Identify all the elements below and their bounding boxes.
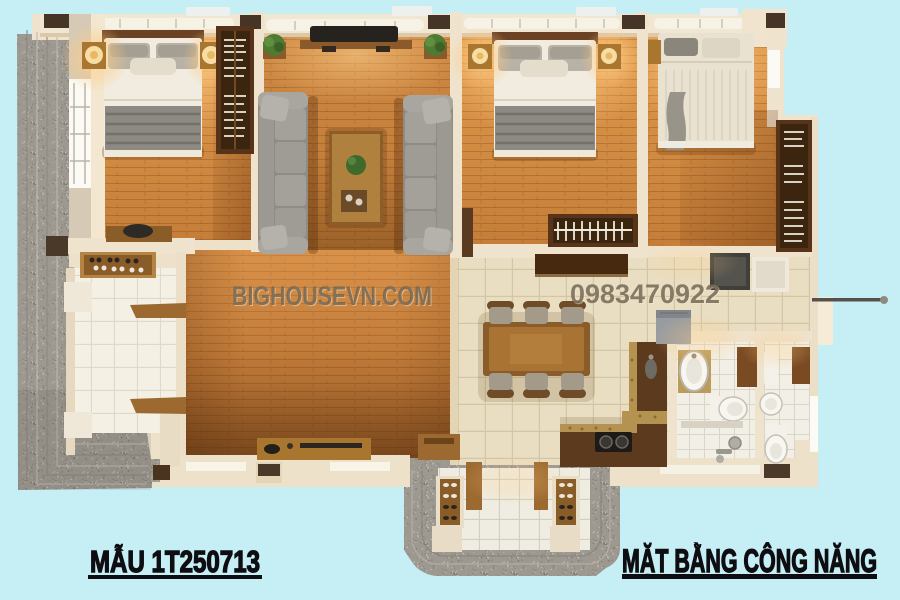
svg-text:BIGHOUSEVN.COM: BIGHOUSEVN.COM bbox=[232, 281, 432, 311]
svg-text:0983470922: 0983470922 bbox=[570, 279, 720, 309]
svg-text:MẪU 1T250713: MẪU 1T250713 bbox=[90, 544, 260, 579]
svg-text:MẶT BẰNG CÔNG NĂNG: MẶT BẰNG CÔNG NĂNG bbox=[622, 543, 877, 579]
